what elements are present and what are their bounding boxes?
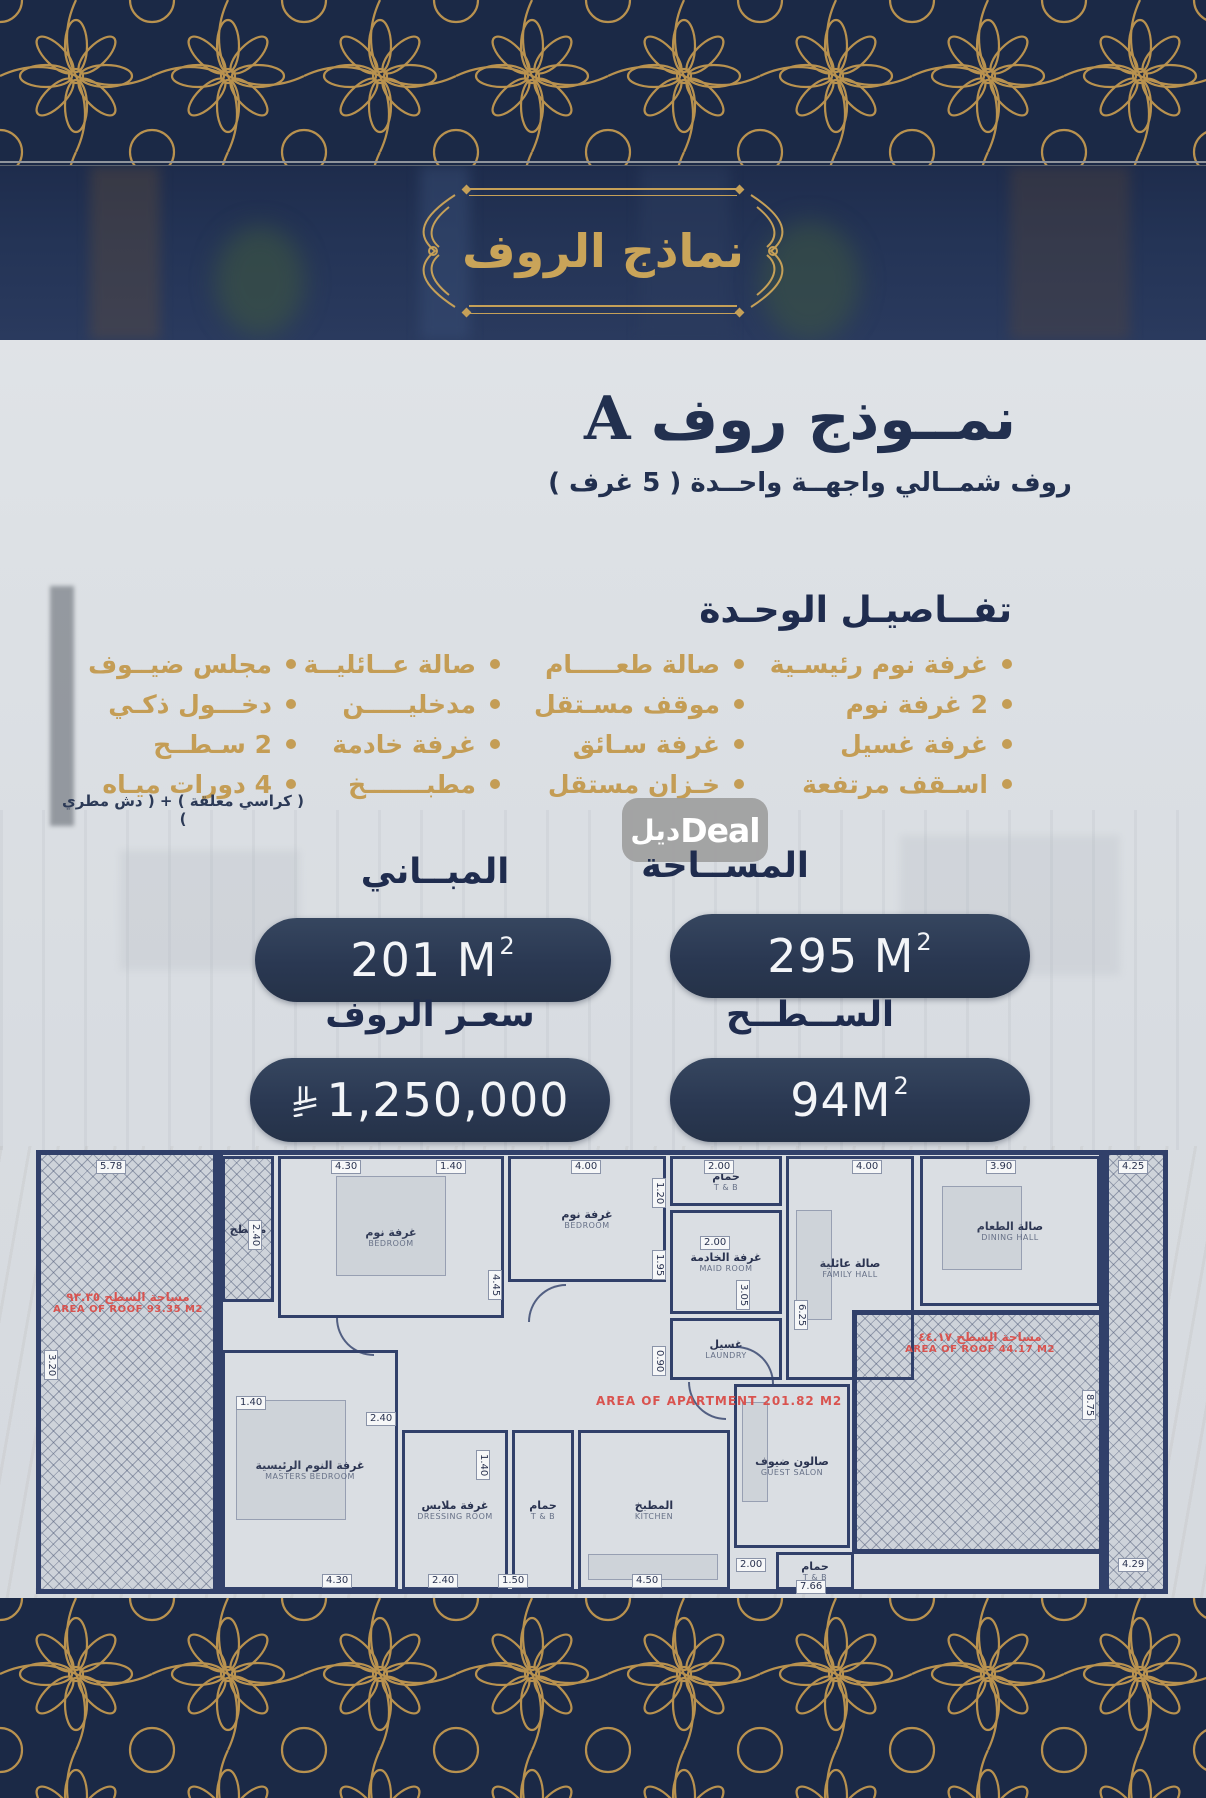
features-grid: غرفة نوم رئيسـيةصالة طعـــــامصالة عــائ…: [64, 644, 1012, 804]
watermark-latin: Deal: [680, 811, 759, 850]
frame-line: [469, 305, 737, 307]
feature-label: غرفة سـائق: [573, 730, 720, 759]
bullet-icon: [490, 779, 500, 789]
frame-diamond: [735, 185, 745, 195]
bullet-icon: [1002, 779, 1012, 789]
dimension-chip: 4.50: [632, 1574, 662, 1588]
stat-buildings-pill: 201 M2: [255, 918, 611, 1002]
stat-surface-value: 94M: [790, 1073, 891, 1127]
left-roof-area-label: مساحة السطح ٩٣.٣٥ AREA OF ROOF 93.35 M2: [50, 1290, 206, 1315]
feature-label: مدخليـــــن: [342, 690, 476, 719]
dimension-chip: 0.90: [652, 1346, 666, 1376]
bullet-icon: [734, 779, 744, 789]
frame-diamond: [735, 308, 745, 318]
feature-label: غرفة خادمة: [332, 730, 476, 759]
dimension-chip: 2.40: [366, 1412, 396, 1426]
dimension-chip: 1.40: [476, 1450, 490, 1480]
room-name-ar: حمام: [529, 1499, 557, 1512]
arabesque-pattern-svg: [0, 0, 1206, 166]
bullet-icon: [286, 699, 296, 709]
stat-buildings-sup: 2: [499, 932, 515, 960]
bullet-icon: [286, 779, 296, 789]
feature-item: دخـــول ذكـي: [64, 684, 296, 724]
riyal-symbol-icon: [290, 1083, 320, 1117]
room: غرفة الخادمة MAID ROOM: [670, 1210, 782, 1314]
feature-item: غرفة غسيل: [760, 724, 1012, 764]
dimension-chip: 7.66: [796, 1580, 826, 1594]
dimension-chip: 3.90: [986, 1160, 1016, 1174]
top-arabesque-border: [0, 0, 1206, 166]
stat-surface-pill: 94M2: [670, 1058, 1030, 1142]
stat-price-value: 1,250,000: [326, 1073, 569, 1127]
model-title: نمــوذج روف A: [500, 384, 1100, 454]
bullet-icon: [734, 699, 744, 709]
page-title: نماذج الروف: [403, 224, 803, 278]
feature-item: موقف مسـتقل: [516, 684, 744, 724]
room: حمام T & B: [512, 1430, 574, 1590]
bullet-icon: [1002, 699, 1012, 709]
dimension-chip: 2.00: [700, 1236, 730, 1250]
dimension-chip: 1.40: [436, 1160, 466, 1174]
feature-label: صالة طعـــــام: [545, 650, 720, 679]
stat-area-pill: 295 M2: [670, 914, 1030, 998]
room-name-en: GUEST SALON: [761, 1468, 823, 1478]
details-heading: تفــاصيـل الوحـدة: [699, 590, 1012, 631]
dimension-chip: 2.00: [736, 1558, 766, 1572]
feature-item: 2 سـطــح: [64, 724, 296, 764]
left-roof-terrace: [36, 1150, 218, 1594]
frame-line: [469, 195, 737, 196]
feature-item: غرفة خادمة: [312, 724, 500, 764]
room-name-en: T & B: [714, 1183, 738, 1193]
model-title-ar: نمــوذج روف: [651, 385, 1016, 453]
band-separator-line: [0, 161, 1206, 166]
stat-surface-sup: 2: [893, 1072, 909, 1100]
bullet-icon: [734, 739, 744, 749]
feature-label: 2 غرفة نوم: [846, 690, 988, 719]
stat-area-label: المســاحة: [585, 846, 865, 886]
room-name-en: DRESSING ROOM: [417, 1512, 493, 1522]
dimension-chip: 4.25: [1118, 1160, 1148, 1174]
feature-item: 2 غرفة نوم: [760, 684, 1012, 724]
model-subtitle: روف شمــالي واجهــة واحــدة ( 5 غرف ): [520, 468, 1100, 498]
title-ornate-frame: نماذج الروف: [403, 188, 803, 314]
room-name-ar: غرفة ملابس: [422, 1499, 489, 1512]
room-name-en: BEDROOM: [564, 1221, 609, 1231]
feature-label: 2 سـطــح: [153, 730, 272, 759]
frame-line: [469, 188, 737, 190]
flyer-page: نماذج الروف نمــوذج روف A روف شمــالي وا…: [0, 0, 1206, 1798]
furniture-ghost: [336, 1176, 446, 1276]
hero-section: نماذج الروف: [0, 166, 1206, 340]
stat-area-value: 295 M: [767, 929, 914, 983]
bullet-icon: [490, 699, 500, 709]
stat-area-sup: 2: [916, 928, 932, 956]
dimension-chip: 4.30: [322, 1574, 352, 1588]
stat-buildings-value: 201 M: [350, 933, 497, 987]
dimension-chip: 2.40: [248, 1220, 262, 1250]
furniture-ghost: [942, 1186, 1022, 1270]
plant-ghost: [215, 226, 305, 336]
dimension-chip: 3.20: [44, 1350, 58, 1380]
room-name-ar: غرفة نوم: [561, 1208, 612, 1221]
stat-buildings-label: المبــاني: [295, 852, 575, 892]
room-name-ar: حمام: [801, 1560, 829, 1573]
dimension-chip: 4.30: [331, 1160, 361, 1174]
bullet-icon: [490, 739, 500, 749]
dimension-chip: 1.50: [498, 1574, 528, 1588]
bullet-icon: [734, 659, 744, 669]
feature-item: مطبـــــــخ: [312, 764, 500, 804]
floor-plan-section: مسطح غرفة نوم BEDROOM غرفة نوم BEDROOM ح…: [0, 1146, 1206, 1598]
dimension-chip: 4.29: [1118, 1558, 1148, 1572]
dimension-chip: 8.75: [1082, 1390, 1096, 1420]
right-roof-area-label: مساحة السطح ٤٤.١٧ AREA OF ROOF 44.17 M2: [872, 1330, 1088, 1355]
feature-label: صالة عــائليــة: [304, 650, 476, 679]
dimension-chip: 4.45: [488, 1270, 502, 1300]
dimension-chip: 1.95: [652, 1250, 666, 1280]
stat-price-label: سعـر الروف: [290, 995, 570, 1035]
room-name-en: KITCHEN: [635, 1512, 673, 1522]
room-name-en: MAID ROOM: [700, 1264, 753, 1274]
room-name-ar: غرفة الخادمة: [690, 1251, 761, 1264]
furniture-ghost: [236, 1400, 346, 1520]
feature-item: مدخليـــــن: [312, 684, 500, 724]
bottom-arabesque-border: [0, 1598, 1206, 1798]
bullet-icon: [1002, 659, 1012, 669]
dimension-chip: 1.40: [236, 1396, 266, 1410]
photo-streak: [1010, 166, 1130, 340]
features-footnote: ( كراسي معلقة ) + ( دش مطري ): [58, 792, 308, 828]
dimension-chip: 2.40: [428, 1574, 458, 1588]
room-name-en: T & B: [531, 1512, 555, 1522]
feature-item: صالة طعـــــام: [516, 644, 744, 684]
feature-item: صالة عــائليــة: [312, 644, 500, 684]
bullet-icon: [286, 739, 296, 749]
feature-label: خـزان مستقل: [548, 770, 720, 799]
arabesque-pattern-svg: [0, 1598, 1206, 1798]
room: غرفة ملابس DRESSING ROOM: [402, 1430, 508, 1590]
feature-label: موقف مسـتقل: [534, 690, 720, 719]
dimension-chip: 4.00: [571, 1160, 601, 1174]
room: غرفة نوم BEDROOM: [508, 1156, 666, 1282]
feature-label: غرفة غسيل: [840, 730, 988, 759]
feature-item: مجلس ضيــوف: [64, 644, 296, 684]
apartment-area-label: AREA OF APARTMENT 201.82 M2: [596, 1394, 842, 1408]
bullet-icon: [1002, 739, 1012, 749]
dimension-chip: 2.00: [704, 1160, 734, 1174]
right-roof-strip: [1104, 1150, 1168, 1594]
feature-item: غرفة سـائق: [516, 724, 744, 764]
bullet-icon: [286, 659, 296, 669]
dimension-chip: 1.20: [652, 1178, 666, 1208]
floor-plan: مسطح غرفة نوم BEDROOM غرفة نوم BEDROOM ح…: [36, 1150, 1168, 1594]
feature-item: اسـقف مرتفعة: [760, 764, 1012, 804]
dimension-chip: 5.78: [96, 1160, 126, 1174]
frame-line: [469, 313, 737, 314]
photo-streak: [90, 166, 160, 340]
dimension-chip: 6.25: [794, 1300, 808, 1330]
stat-surface-label: الســطــح: [670, 995, 950, 1035]
watermark-arabic: ديل: [630, 814, 680, 847]
feature-label: دخـــول ذكـي: [108, 690, 272, 719]
bullet-icon: [490, 659, 500, 669]
feature-label: مجلس ضيــوف: [88, 650, 272, 679]
room-name-ar: المطبخ: [635, 1499, 673, 1512]
content-section: نمــوذج روف A روف شمــالي واجهــة واحــد…: [0, 340, 1206, 1146]
dimension-chip: 3.05: [736, 1280, 750, 1310]
feature-label: مطبـــــــخ: [348, 770, 476, 799]
furniture-ghost: [742, 1402, 768, 1502]
feature-item: غرفة نوم رئيسـية: [760, 644, 1012, 684]
model-letter: A: [584, 384, 631, 454]
feature-label: اسـقف مرتفعة: [802, 770, 988, 799]
stat-price-pill: 1,250,000: [250, 1058, 610, 1142]
dimension-chip: 4.00: [852, 1160, 882, 1174]
feature-label: غرفة نوم رئيسـية: [770, 650, 988, 679]
